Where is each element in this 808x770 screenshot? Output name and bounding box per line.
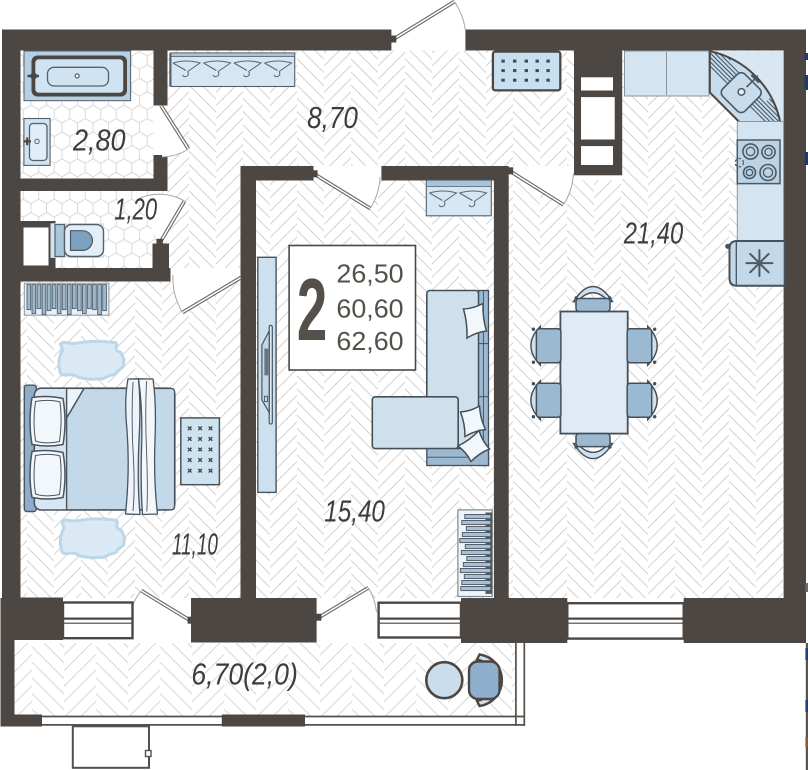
- svg-text:26,50: 26,50: [336, 259, 403, 289]
- svg-text:11,10: 11,10: [172, 528, 218, 562]
- svg-text:2: 2: [297, 261, 327, 360]
- svg-text:6,70(2,0): 6,70(2,0): [191, 658, 298, 692]
- svg-text:62,60: 62,60: [336, 326, 403, 356]
- svg-text:15,40: 15,40: [324, 495, 385, 529]
- svg-text:60,60: 60,60: [336, 293, 403, 323]
- svg-text:8,70: 8,70: [307, 101, 358, 135]
- svg-text:21,40: 21,40: [623, 217, 683, 251]
- svg-text:2,80: 2,80: [72, 124, 126, 158]
- svg-text:1,20: 1,20: [114, 193, 157, 227]
